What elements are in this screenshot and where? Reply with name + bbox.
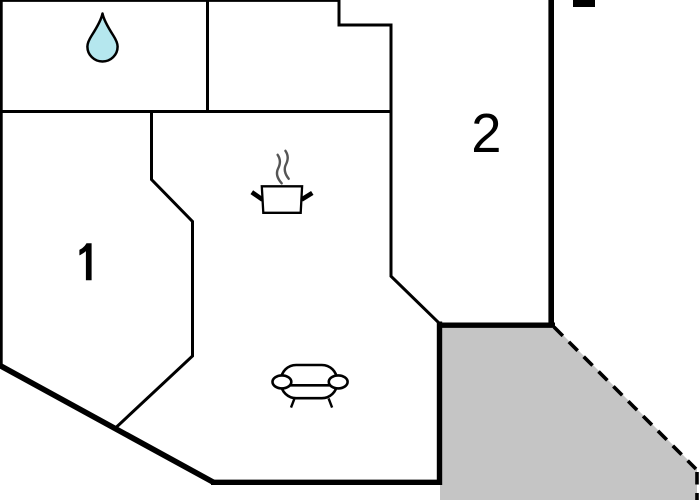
svg-text:2: 2	[471, 103, 501, 164]
